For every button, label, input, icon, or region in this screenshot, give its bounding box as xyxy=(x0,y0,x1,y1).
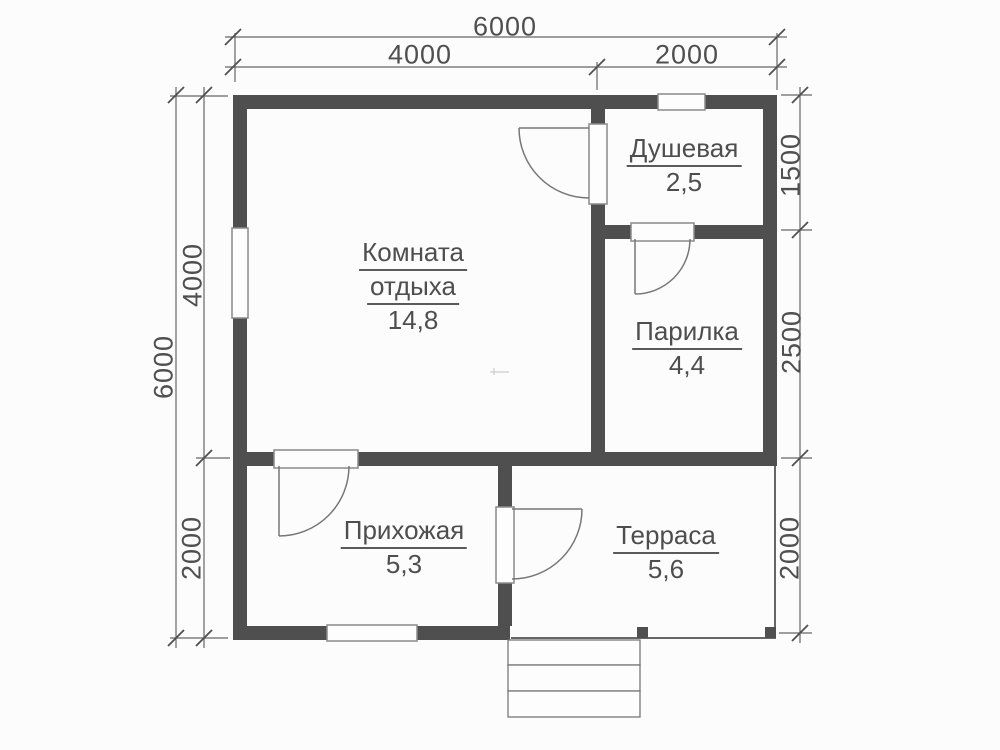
dim-label-right-upper: 1500 xyxy=(776,133,807,197)
step-2 xyxy=(508,665,640,691)
entrance-steps xyxy=(508,640,640,717)
door-arc-lounge-hallway xyxy=(279,466,349,536)
door-arc-lounge-shower xyxy=(519,128,589,198)
dim-label-top-right: 2000 xyxy=(655,40,719,71)
room-area-lounge: 14,8 xyxy=(359,306,467,335)
door-arc-shower-steam xyxy=(635,239,690,294)
door-frame-lounge-shower xyxy=(589,124,607,204)
door-frame-shower-steam xyxy=(631,223,694,241)
dim-label-left-upper: 4000 xyxy=(178,243,209,307)
room-label-steam: Парилка 4,4 xyxy=(632,316,742,380)
room-label-terrace: Терраса 5,6 xyxy=(613,520,719,584)
terrace-post-corner xyxy=(765,627,776,638)
window-left-wall xyxy=(232,228,248,318)
floor-plan-canvas: 6000 4000 2000 6000 4000 2000 1500 2500 … xyxy=(0,0,1000,750)
window-top-wall-shower xyxy=(658,94,705,110)
room-label-shower: Душевая 2,5 xyxy=(627,133,742,197)
room-area-terrace: 5,6 xyxy=(613,555,719,584)
door-arc-hallway-terrace xyxy=(512,509,582,579)
door-frame-lounge-hallway xyxy=(274,450,358,468)
window-bottom-wall-hallway xyxy=(327,625,417,641)
step-3 xyxy=(508,691,640,717)
room-area-steam: 4,4 xyxy=(632,351,742,380)
dim-label-left-lower: 2000 xyxy=(177,516,208,580)
room-name-shower: Душевая xyxy=(627,133,742,167)
room-area-hallway: 5,3 xyxy=(341,550,467,579)
room-name-hallway: Прихожая xyxy=(341,515,467,549)
door-frame-hallway-terrace xyxy=(496,507,514,583)
dim-label-top-left: 4000 xyxy=(388,40,452,71)
wall-exterior-left xyxy=(233,95,247,640)
scan-artifact xyxy=(490,368,509,375)
terrace-post-middle xyxy=(637,627,648,638)
room-name-terrace: Терраса xyxy=(613,520,719,554)
room-label-lounge: Комната отдыха 14,8 xyxy=(359,237,467,335)
room-label-hallway: Прихожая 5,3 xyxy=(341,515,467,579)
room-name-lounge-line1: Комната xyxy=(359,237,467,271)
room-name-steam: Парилка xyxy=(632,316,742,350)
dim-label-right-lower: 2000 xyxy=(775,516,806,580)
room-area-shower: 2,5 xyxy=(627,168,742,197)
dim-label-right-middle: 2500 xyxy=(777,310,808,374)
step-1 xyxy=(508,640,640,665)
dim-label-top-total: 6000 xyxy=(473,12,537,43)
dim-label-left-total: 6000 xyxy=(149,335,180,399)
room-name-lounge-line2: отдыха xyxy=(367,271,459,305)
